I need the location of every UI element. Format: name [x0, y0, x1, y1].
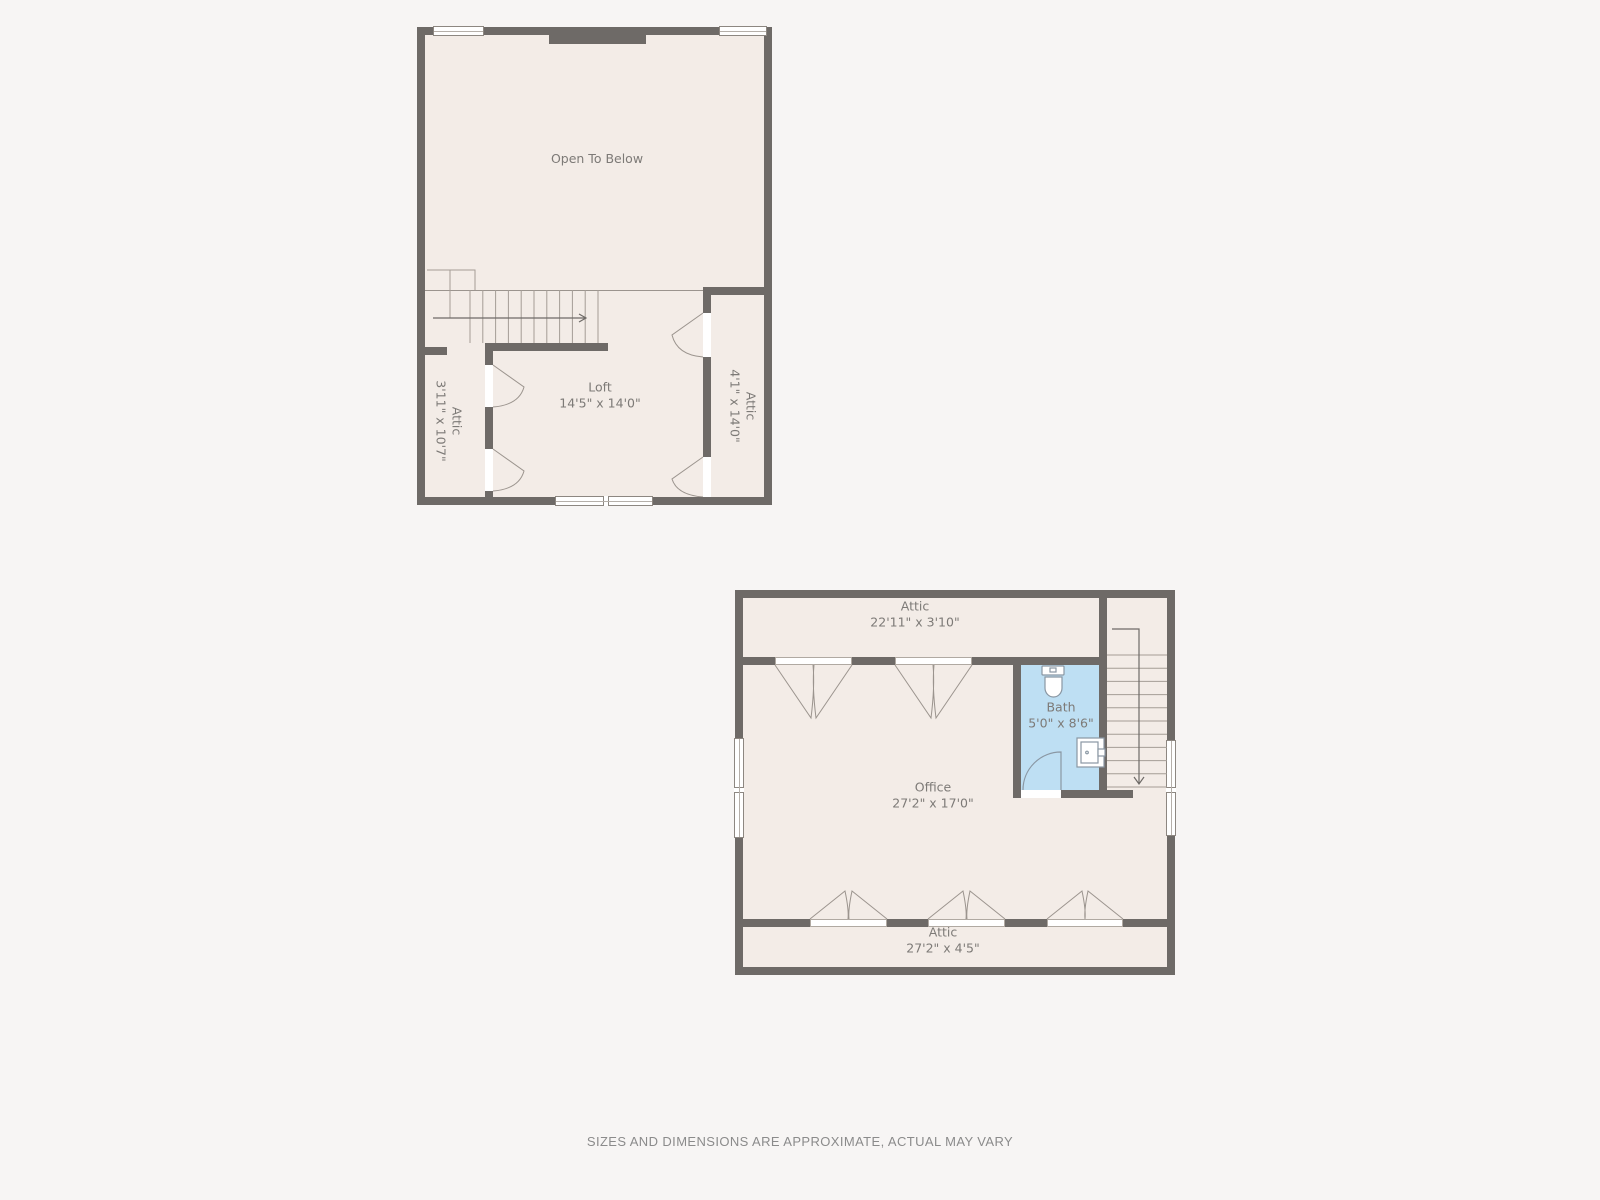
bifold-door-leaf — [967, 891, 1005, 919]
room-name: Attic — [449, 380, 465, 461]
open-to-below-label: Open To Below — [551, 151, 643, 167]
room-label-loft: Loft 14'5" x 14'0" — [559, 379, 640, 410]
room-dims: 22'11" x 3'10" — [870, 614, 959, 630]
room-name: Office — [892, 779, 973, 795]
bifold-door-leaf — [813, 665, 852, 718]
door-arc — [672, 457, 703, 497]
floorplan-canvas: Open To Below Loft 14'5" x 14'0" Attic 3… — [0, 0, 1600, 1200]
upper-floor-plan: Open To Below Loft 14'5" x 14'0" Attic 3… — [417, 27, 772, 505]
bifold-door-leaf — [810, 891, 848, 919]
stairs-treads — [470, 290, 598, 343]
disclaimer-text: SIZES AND DIMENSIONS ARE APPROXIMATE, AC… — [0, 1134, 1600, 1149]
stairs-arrow — [433, 314, 586, 322]
stairs-outline — [427, 270, 475, 318]
door-arc — [493, 365, 524, 407]
room-label-attic-top: Attic 22'11" x 3'10" — [870, 598, 959, 629]
sink-icon — [1077, 738, 1105, 767]
room-name: Open To Below — [551, 151, 643, 167]
room-name: Attic — [906, 924, 979, 940]
room-dims: 14'5" x 14'0" — [559, 395, 640, 411]
door-arc — [672, 313, 703, 357]
bifold-door-leaf — [849, 891, 887, 919]
bifold-door-leaf — [1085, 891, 1123, 919]
room-label-office: Office 27'2" x 17'0" — [892, 779, 973, 810]
room-label-bath: Bath 5'0" x 8'6" — [1028, 699, 1094, 730]
lower-floor-plan: Attic 22'11" x 3'10" Bath 5'0" x 8'6" Of… — [735, 590, 1175, 975]
room-dims: 5'0" x 8'6" — [1028, 715, 1094, 731]
bifold-door-leaf — [775, 665, 814, 718]
upper-plan-linework — [425, 35, 764, 497]
room-label-attic-bottom: Attic 27'2" x 4'5" — [906, 924, 979, 955]
room-name: Attic — [870, 598, 959, 614]
window-mullion — [603, 496, 609, 506]
room-name: Loft — [559, 379, 640, 395]
stairs-treads — [1107, 655, 1167, 787]
bifold-door-leaf — [928, 891, 966, 919]
window-mullion — [1166, 787, 1176, 793]
bifold-door-leaf — [895, 665, 934, 718]
bifold-door-leaf — [933, 665, 972, 718]
room-dims: 4'1" x 14'0" — [727, 369, 743, 442]
room-dims: 27'2" x 17'0" — [892, 795, 973, 811]
bifold-door-leaf — [1047, 891, 1085, 919]
window — [1166, 740, 1176, 836]
door-arc — [493, 449, 524, 491]
room-dims: 3'11" x 10'7" — [433, 380, 449, 461]
room-dims: 27'2" x 4'5" — [906, 940, 979, 956]
room-label-attic-right: Attic 4'1" x 14'0" — [727, 369, 758, 442]
door-arc — [1023, 752, 1061, 790]
toilet-icon — [1042, 666, 1064, 697]
window — [555, 496, 653, 506]
room-name: Attic — [743, 369, 759, 442]
room-name: Bath — [1028, 699, 1094, 715]
room-label-attic-left: Attic 3'11" x 10'7" — [433, 380, 464, 461]
